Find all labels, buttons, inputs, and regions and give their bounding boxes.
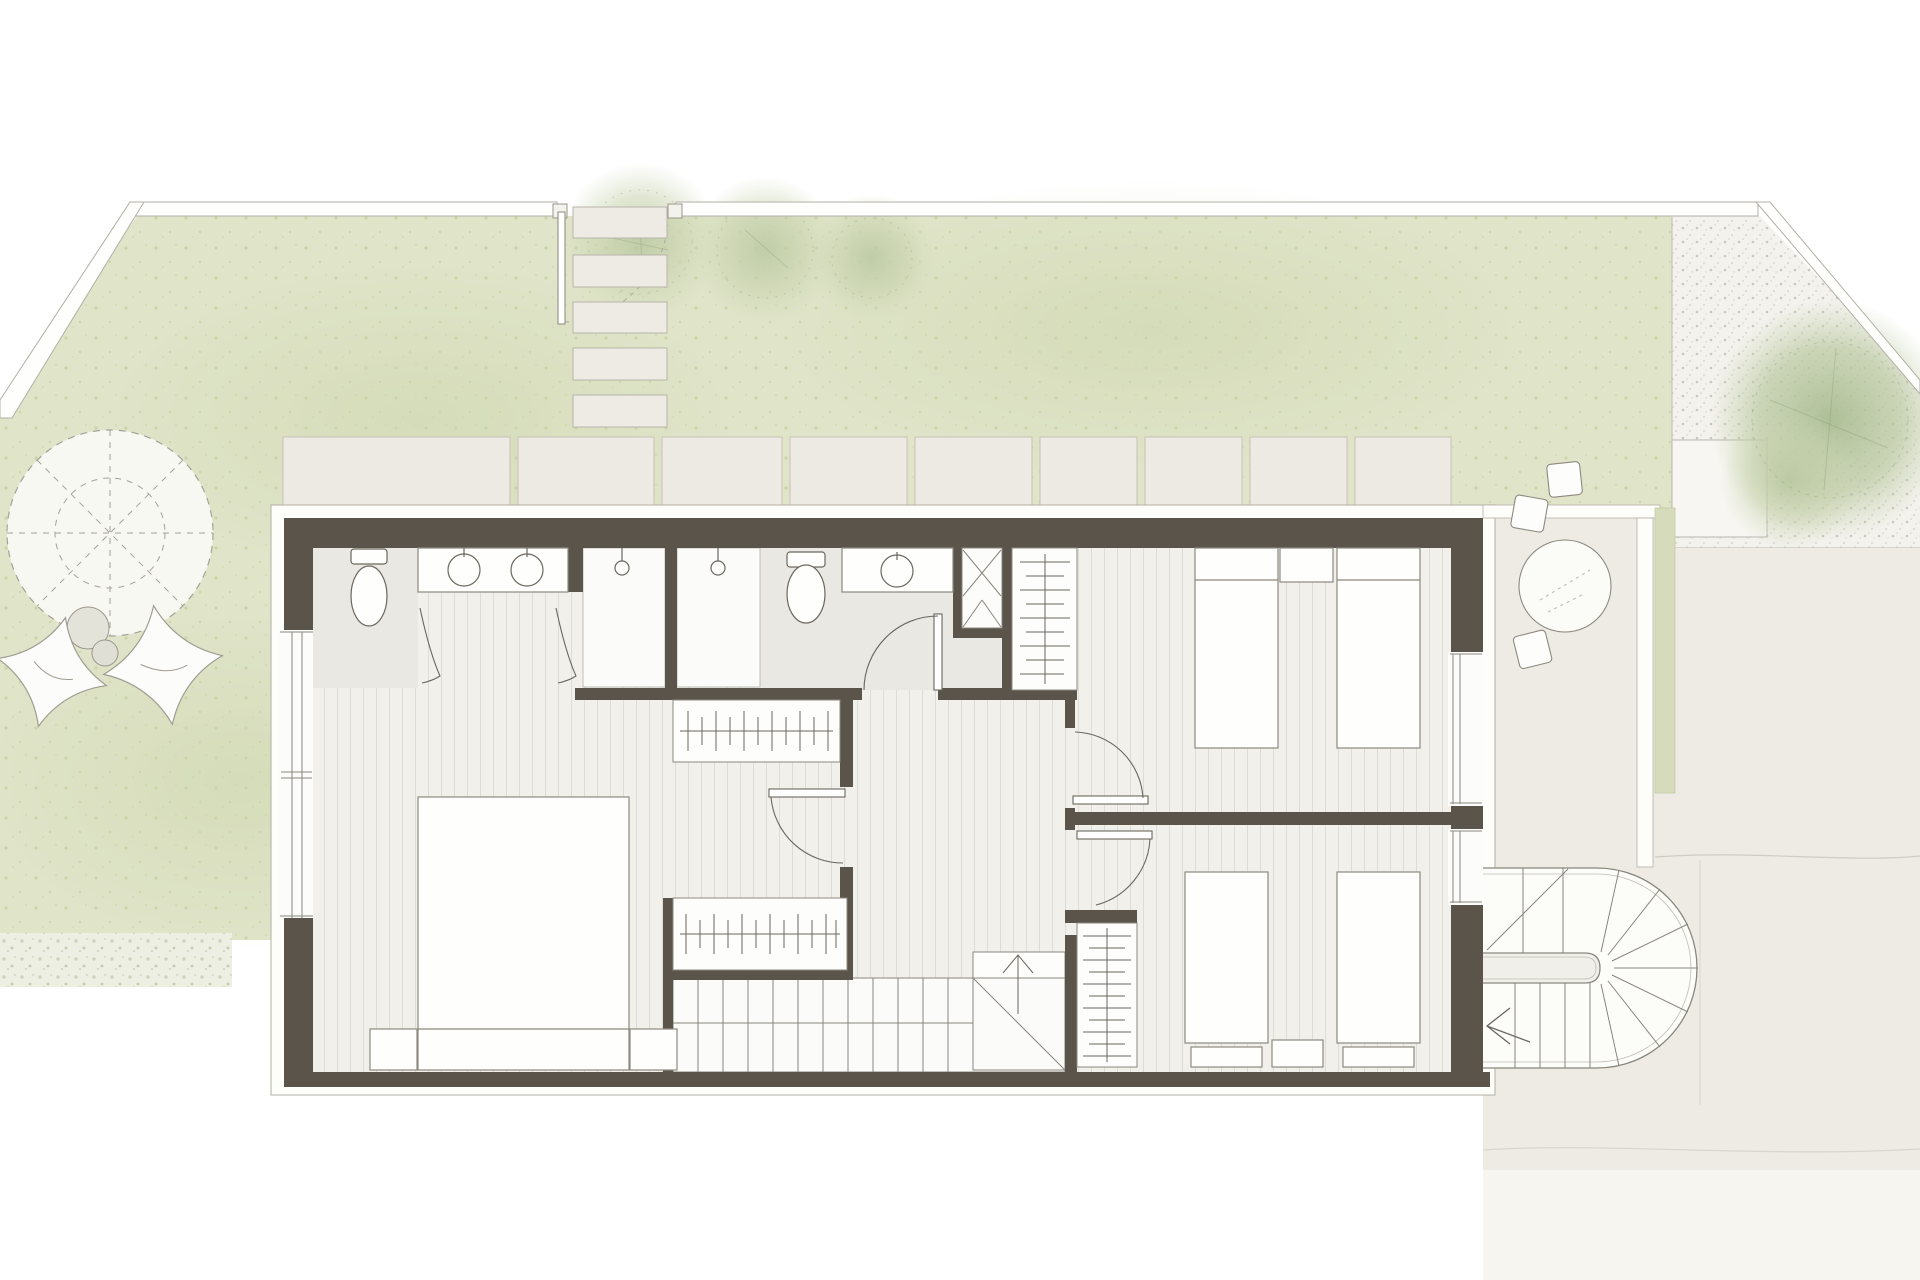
door-leaf-bathroom2 xyxy=(934,614,942,690)
east-windows xyxy=(1448,652,1483,905)
paver xyxy=(662,437,782,505)
planting-strip xyxy=(1655,508,1675,793)
wall-west-lower xyxy=(284,918,313,1087)
tree-icon xyxy=(1720,410,1860,550)
wall-wardrobe-br-top xyxy=(1065,910,1137,923)
dressing-floor xyxy=(418,592,575,688)
paver xyxy=(1040,437,1137,505)
wall-west-upper xyxy=(284,518,313,630)
wall-south xyxy=(284,1072,1490,1087)
single-bed xyxy=(1195,548,1278,748)
wall-stub-hall-top xyxy=(1065,700,1075,728)
stepping-stone xyxy=(573,395,667,427)
basin-icon xyxy=(448,554,480,586)
single-bed xyxy=(1337,872,1420,1043)
wall-hall-west-upper xyxy=(840,690,853,787)
wall-shaft-bottom xyxy=(953,628,1012,638)
wall-closet-tr-bottom xyxy=(985,690,1077,700)
door-leaf-bedroom-br xyxy=(1077,831,1152,839)
single-bed xyxy=(1185,872,1268,1043)
shower-head-icon xyxy=(711,561,725,575)
shower-head-icon xyxy=(615,561,629,575)
paver xyxy=(1145,437,1242,505)
wall-east-lower xyxy=(1451,905,1483,1087)
toilet-tank xyxy=(351,549,387,564)
paver xyxy=(915,437,1032,505)
door-leaf-master xyxy=(769,789,845,797)
wall-shower-divider xyxy=(665,548,677,688)
gate-leaf xyxy=(558,212,565,324)
terrace-chair xyxy=(1513,629,1553,669)
wall-east-mid xyxy=(1451,806,1483,829)
wall-stub-hall-mid xyxy=(1065,808,1075,830)
stepping-stone xyxy=(573,207,667,238)
wall-east-upper xyxy=(1451,518,1483,652)
door-leaf-bedroom-tr xyxy=(1073,796,1148,804)
spiral-newel xyxy=(1483,953,1600,983)
wall-stair-east xyxy=(1065,935,1077,1072)
paver xyxy=(1250,437,1347,505)
vanity-double xyxy=(418,548,568,592)
spiral-staircase xyxy=(1483,868,1698,1068)
wall-wardrobe2-bottom xyxy=(663,970,850,980)
pillow xyxy=(1191,1047,1262,1067)
terrace-chair xyxy=(1546,461,1582,497)
gate-post xyxy=(668,204,682,218)
terrace-top-edge xyxy=(1483,505,1660,518)
shrub-icon xyxy=(92,640,118,666)
nightstand xyxy=(1280,548,1333,582)
wall-bedroom-divider xyxy=(1075,812,1451,825)
nightstand xyxy=(370,1029,417,1070)
lawn-trees xyxy=(560,162,936,324)
single-bed xyxy=(1337,548,1420,748)
wall-bath-south-left xyxy=(575,688,862,700)
paver xyxy=(1355,437,1451,505)
site-plan-canvas xyxy=(0,0,1920,1280)
fence-segment xyxy=(130,202,557,216)
paver xyxy=(518,437,654,505)
west-window xyxy=(278,630,313,920)
paver-strip xyxy=(283,437,1451,505)
wall-north xyxy=(284,518,1483,548)
wall-shaft-left xyxy=(953,548,962,638)
terrace-chair xyxy=(1510,494,1548,532)
duct-shaft xyxy=(962,548,1002,628)
round-table xyxy=(1519,540,1611,632)
stair-floor xyxy=(673,978,1067,1072)
pillow xyxy=(1343,1047,1414,1067)
stepping-stone xyxy=(573,302,667,333)
stepping-stone xyxy=(573,255,667,287)
paver xyxy=(283,437,510,505)
window-band xyxy=(278,630,313,920)
toilet-icon xyxy=(787,565,825,623)
nightstand xyxy=(630,1029,677,1070)
fence-segment xyxy=(676,202,1758,216)
floor-plan-drawing xyxy=(0,0,1920,1280)
toilet-icon xyxy=(351,566,387,626)
wall-shaft-right xyxy=(1002,548,1012,700)
nightstand xyxy=(1272,1040,1323,1067)
stepping-stone xyxy=(573,348,667,380)
wall-vanity-stub xyxy=(568,548,583,592)
terrace-east-edge xyxy=(1637,518,1653,867)
basin-icon xyxy=(511,554,543,586)
flower-bed xyxy=(0,933,232,987)
paver xyxy=(790,437,907,505)
